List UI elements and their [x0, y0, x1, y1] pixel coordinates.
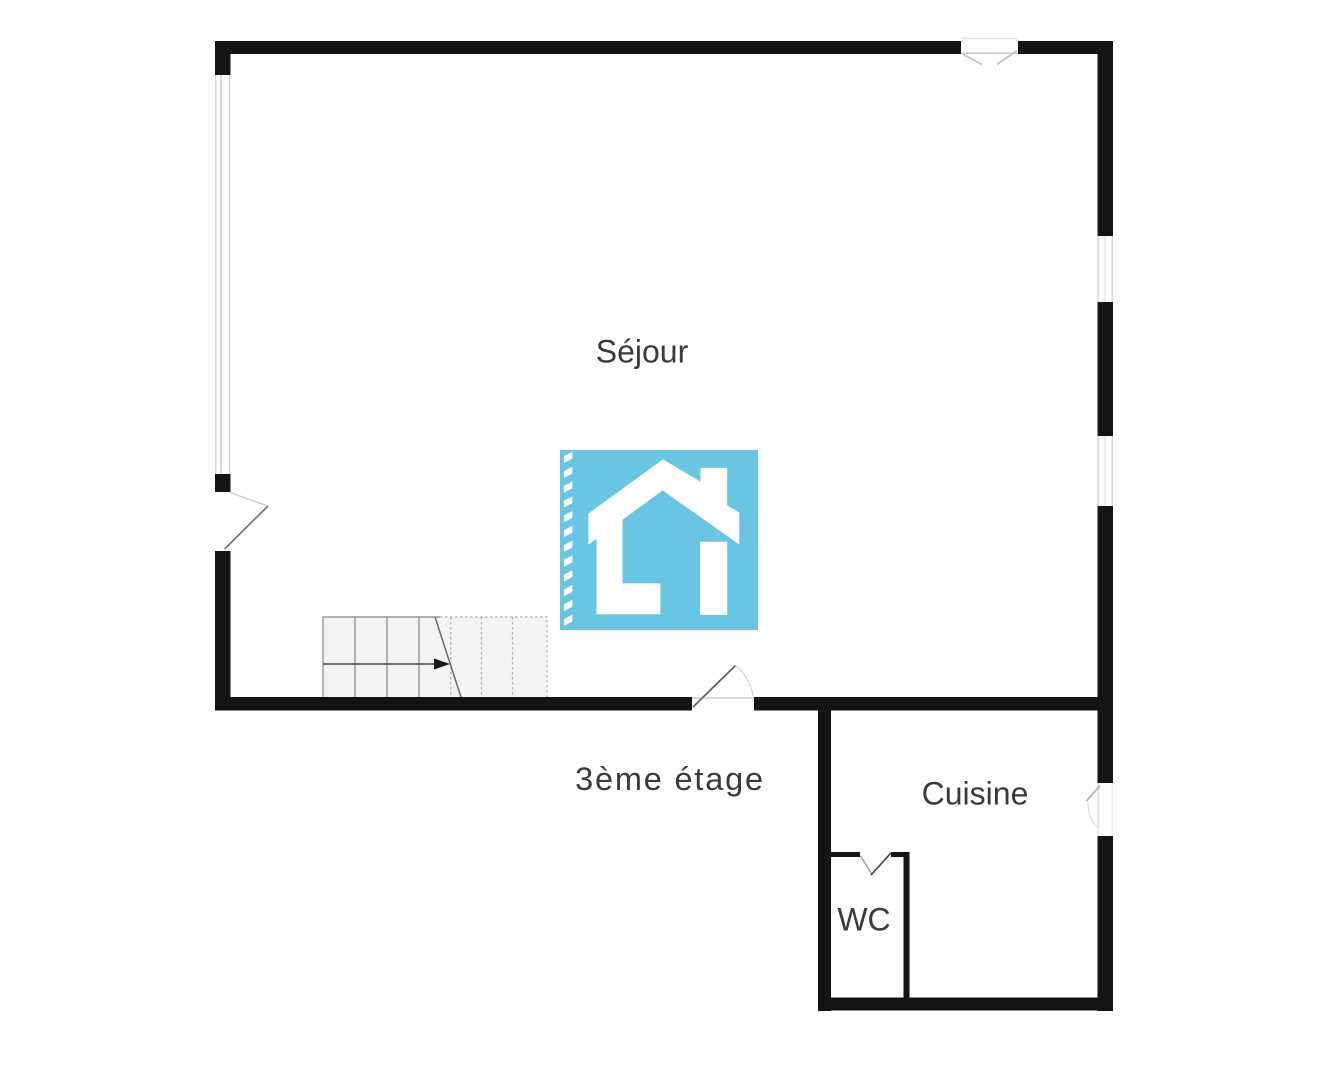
svg-text:Cuisine: Cuisine	[922, 776, 1029, 812]
svg-text:WC: WC	[837, 902, 890, 938]
svg-text:Séjour: Séjour	[596, 334, 689, 370]
svg-text:3ème étage: 3ème étage	[575, 761, 765, 797]
